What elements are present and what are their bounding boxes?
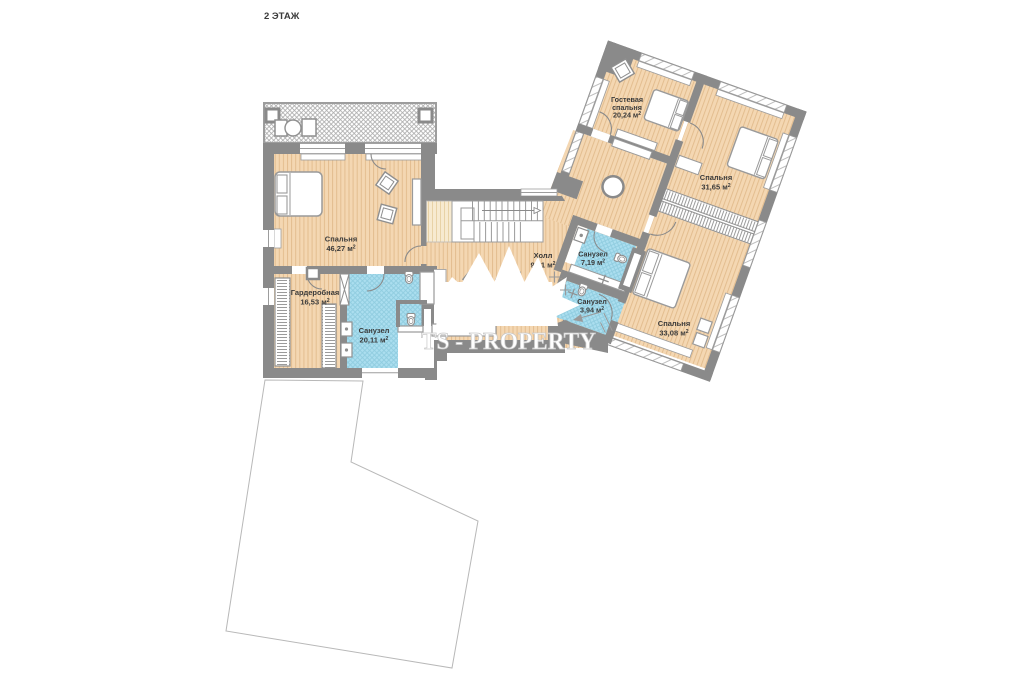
svg-text:TS - PROPERTY: TS - PROPERTY	[421, 329, 596, 355]
svg-text:16,53 м2: 16,53 м2	[300, 298, 329, 307]
svg-text:2 ЭТАЖ: 2 ЭТАЖ	[264, 11, 300, 22]
svg-text:20,11 м2: 20,11 м2	[360, 336, 389, 345]
svg-text:3,94 м2: 3,94 м2	[580, 306, 604, 315]
svg-text:Спальня: Спальня	[325, 235, 357, 244]
svg-text:Спальня: Спальня	[700, 173, 732, 182]
svg-text:Спальня: Спальня	[658, 319, 690, 328]
svg-text:20,24 м2: 20,24 м2	[613, 111, 641, 120]
svg-text:7,19 м2: 7,19 м2	[581, 258, 605, 267]
svg-text:33,08 м2: 33,08 м2	[659, 329, 688, 338]
svg-text:Гардеробная: Гардеробная	[291, 288, 340, 297]
svg-text:31,65 м2: 31,65 м2	[701, 183, 730, 192]
svg-text:46,27 м2: 46,27 м2	[326, 244, 355, 253]
svg-text:Холл: Холл	[534, 251, 553, 260]
svg-text:Санузел: Санузел	[359, 326, 390, 335]
